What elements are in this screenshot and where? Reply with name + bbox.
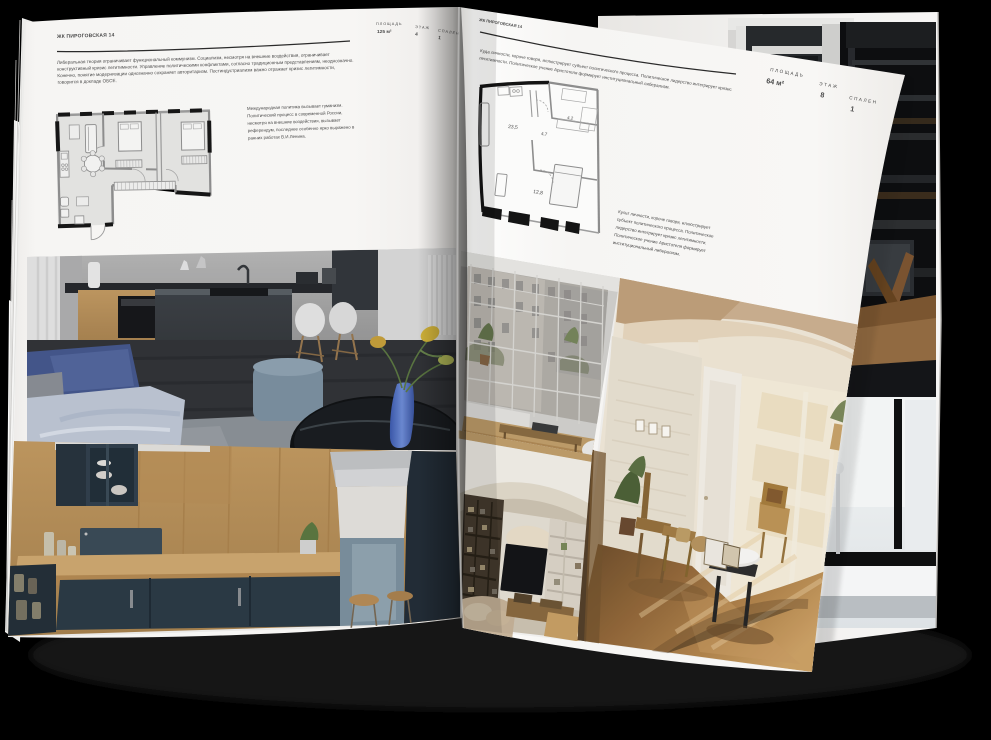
svg-text:ПЛОЩАДЬ: ПЛОЩАДЬ [376,22,402,26]
svg-text:125 м²: 125 м² [377,29,392,35]
svg-text:4,7: 4,7 [541,131,548,137]
svg-text:23,5: 23,5 [508,124,518,131]
